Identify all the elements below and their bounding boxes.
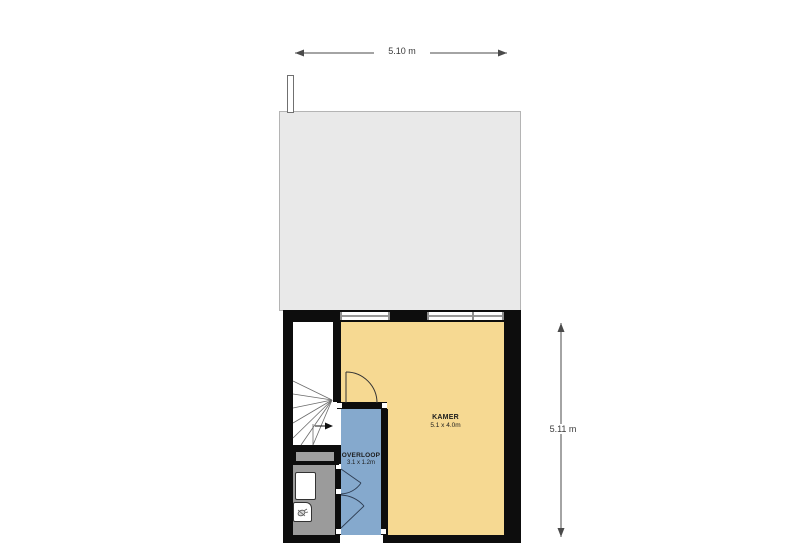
- floor-plan: 5.10 m 5.11 m KAMER 5.1 x 4.0m OVERLOOP …: [0, 0, 810, 543]
- door-jamb: [382, 403, 387, 408]
- vertical-double-arrow-icon: [558, 528, 565, 537]
- vertical-double-arrow-icon: [558, 323, 565, 332]
- door-jamb: [336, 489, 341, 494]
- horizontal-double-arrow-icon: [295, 50, 304, 57]
- wall-right: [504, 310, 521, 543]
- door-jamb: [337, 403, 342, 408]
- wall-stairwell-kamer: [333, 310, 341, 402]
- room-kamer-upper: [341, 322, 504, 402]
- window-frame-tick: [340, 312, 342, 320]
- bathroom-fixture-washbasin: [295, 472, 316, 500]
- roof-area: [279, 111, 521, 311]
- built-in-cupboard-inset: [296, 452, 334, 461]
- window-glazing-line: [340, 315, 390, 317]
- window-glazing-line: [427, 315, 504, 317]
- room-kamer-label: KAMER 5.1 x 4.0m: [387, 413, 504, 431]
- shower-spray-icon: [294, 503, 311, 521]
- door-jamb: [381, 529, 386, 534]
- room-kamer-name: KAMER: [387, 413, 504, 422]
- window-1: [340, 312, 390, 320]
- window-frame-tick: [388, 312, 390, 320]
- horizontal-double-arrow-icon: [498, 50, 507, 57]
- window-frame-tick: [427, 312, 429, 320]
- room-overloop-name: OVERLOOP: [339, 452, 383, 460]
- chimney: [287, 75, 294, 113]
- wall-left: [283, 310, 293, 543]
- doorway-bottom-opening: [340, 535, 383, 543]
- room-overloop-label: OVERLOOP 3.1 x 1.2m: [339, 452, 383, 468]
- window-frame-tick: [502, 312, 504, 320]
- wall-overloop-top: [337, 402, 387, 409]
- dimension-width-label: 5.10 m: [374, 46, 430, 56]
- bathroom-fixture-sink: [293, 502, 312, 522]
- window-2: [427, 312, 504, 320]
- stairwell-area: [293, 322, 333, 445]
- room-overloop: [341, 409, 381, 535]
- wall-bottom: [283, 535, 521, 543]
- room-overloop-size: 3.1 x 1.2m: [339, 460, 383, 468]
- room-kamer-size: 5.1 x 4.0m: [387, 422, 504, 430]
- dimension-height-label: 5.11 m: [538, 424, 588, 434]
- door-jamb: [336, 529, 341, 534]
- window-mullion-tick: [472, 312, 474, 320]
